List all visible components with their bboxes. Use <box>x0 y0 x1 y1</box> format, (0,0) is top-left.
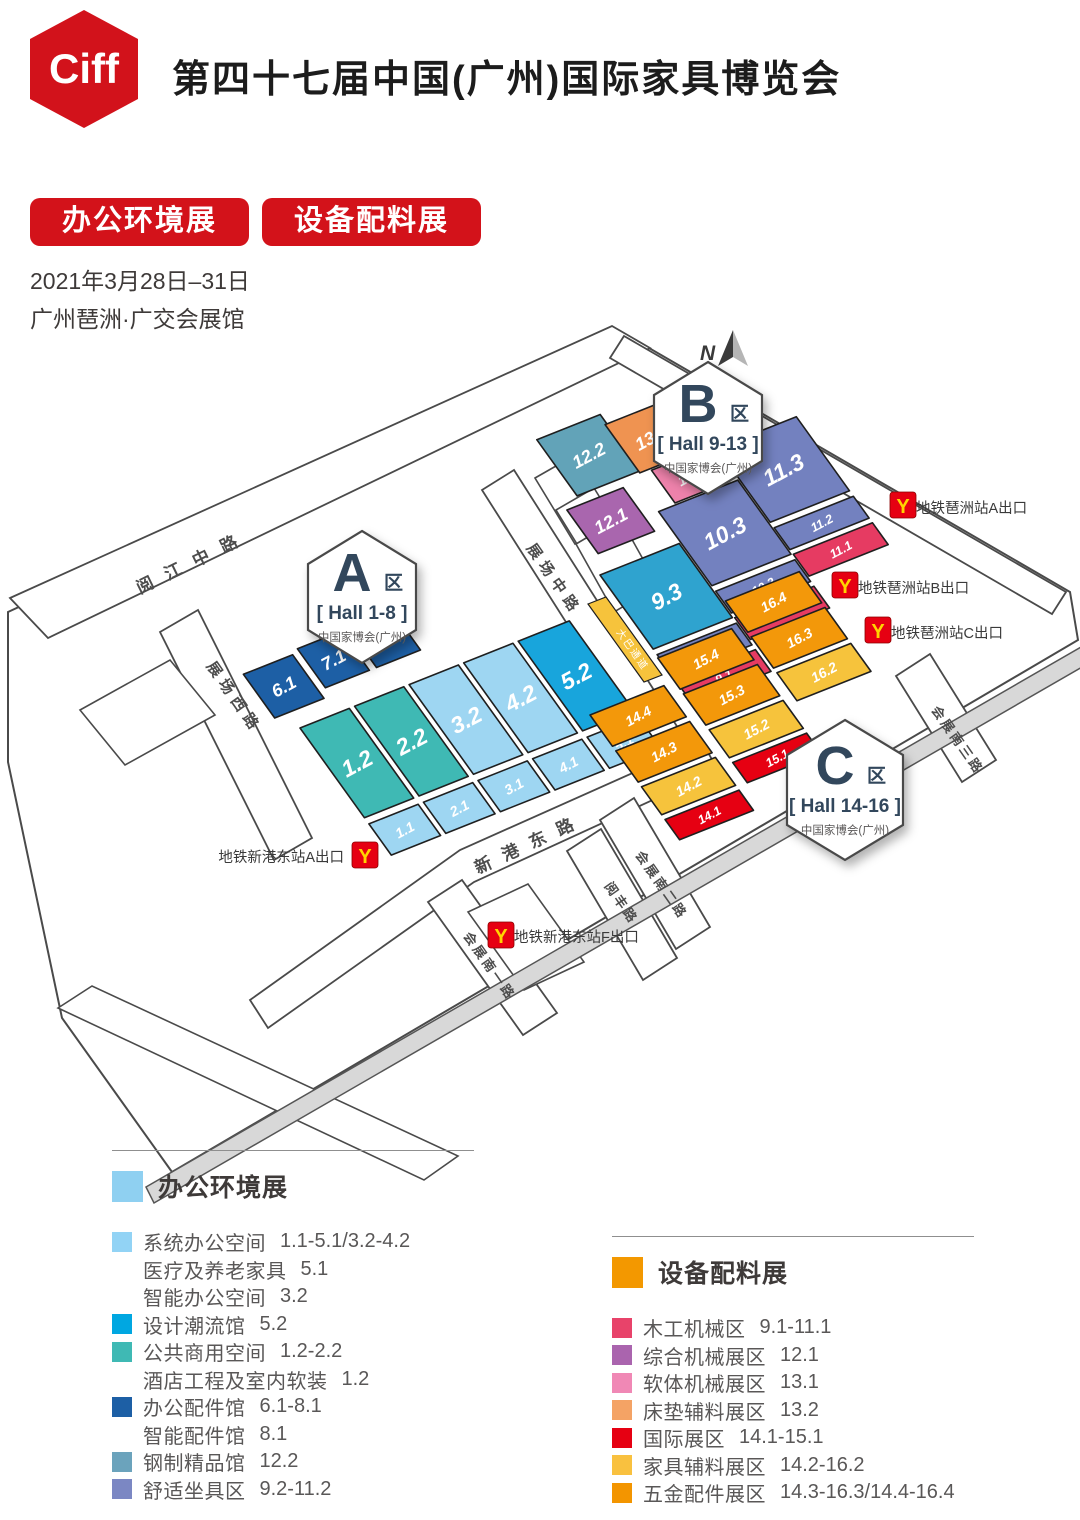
legend-item-range: 1.2-2.2 <box>280 1340 342 1363</box>
zone-suffix-C: 区 <box>867 766 886 787</box>
metro-y-glyph-icon: Y <box>358 846 372 868</box>
legend-item-name: 木工机械区 <box>643 1313 746 1342</box>
legend-item: 钢制精品馆12.2 <box>112 1448 492 1476</box>
legend-item: 木工机械区9.1-11.1 <box>612 1314 992 1342</box>
legend-item-swatch-icon <box>112 1479 132 1499</box>
metro-y-glyph-icon: Y <box>838 576 852 598</box>
badge-office-show[interactable]: 办公环境展 <box>30 198 249 246</box>
legend-equipment-show: 设备配料展 木工机械区9.1-11.1综合机械展区12.1软体机械展区13.1床… <box>612 1236 992 1507</box>
legend-equipment-title: 设备配料展 <box>658 1254 788 1290</box>
legend-equipment-swatch-icon <box>612 1257 643 1288</box>
legend-item-range: 12.1 <box>780 1344 819 1367</box>
legend-item-name: 智能配件馆 <box>143 1420 246 1449</box>
legend-item-swatch-icon <box>612 1455 632 1475</box>
zone-subtitle-C: 中国家博会(广州) <box>801 823 889 837</box>
legend-item-range: 3.2 <box>280 1285 308 1308</box>
legend-item-name: 五金配件展区 <box>643 1478 766 1507</box>
zone-range-B: [ Hall 9-13 ] <box>657 434 758 455</box>
event-date: 2021年3月28日–31日 <box>30 262 250 296</box>
metro-y-glyph-icon: Y <box>896 496 910 518</box>
legend-office-items: 系统办公空间1.1-5.1/3.2-4.2医疗及养老家具5.1智能办公空间3.2… <box>112 1228 492 1503</box>
badge-equipment-show[interactable]: 设备配料展 <box>262 198 481 246</box>
legend-item-range: 5.1 <box>301 1258 329 1281</box>
ciff-logo: Ciff <box>24 6 144 132</box>
legend-item-range: 5.2 <box>260 1313 288 1336</box>
compass: N <box>700 330 748 366</box>
legend-item-swatch-icon <box>112 1452 132 1472</box>
legend-item-range: 9.2-11.2 <box>260 1478 332 1501</box>
legend-item-name: 智能办公空间 <box>143 1282 266 1311</box>
legend-item-swatch-icon <box>612 1318 632 1338</box>
legend-item-range: 14.2-16.2 <box>780 1454 865 1477</box>
legend-item-range: 12.2 <box>260 1450 299 1473</box>
legend-item-swatch-icon <box>112 1232 132 1252</box>
legend-office-title-row: 办公环境展 <box>112 1168 492 1204</box>
legend-item-name: 设计潮流馆 <box>143 1310 246 1339</box>
legend-item: 公共商用空间1.2-2.2 <box>112 1338 492 1366</box>
zone-suffix-A: 区 <box>384 573 403 594</box>
legend-item-name: 综合机械展区 <box>643 1341 766 1370</box>
legend-item: 医疗及养老家具5.1 <box>112 1256 492 1284</box>
metro-y-glyph-icon: Y <box>871 621 885 643</box>
zone-subtitle-B: 中国家博会(广州) <box>664 461 752 475</box>
legend-item: 系统办公空间1.1-5.1/3.2-4.2 <box>112 1228 492 1256</box>
zone-subtitle-A: 中国家博会(广州) <box>318 630 406 644</box>
legend-item-range: 9.1-11.1 <box>760 1316 832 1339</box>
legend-office-swatch-icon <box>112 1171 143 1202</box>
legend-item-name: 舒适坐具区 <box>143 1475 246 1504</box>
legend-item-name: 国际展区 <box>643 1423 725 1452</box>
legend-item-swatch-icon <box>612 1345 632 1365</box>
legend-item-swatch-icon <box>612 1428 632 1448</box>
legend-item-name: 公共商用空间 <box>143 1337 266 1366</box>
legend-item-range: 1.1-5.1/3.2-4.2 <box>280 1230 410 1253</box>
zone-letter-A: A <box>333 543 372 603</box>
legend-item-name: 床垫辅料展区 <box>643 1396 766 1425</box>
legend-equipment-rule <box>612 1236 974 1237</box>
compass-needle-dark-icon <box>718 330 733 366</box>
legend-item-name: 钢制精品馆 <box>143 1447 246 1476</box>
legend-item-name: 系统办公空间 <box>143 1227 266 1256</box>
legend-item-name: 办公配件馆 <box>143 1392 246 1421</box>
legend-item-swatch-icon <box>612 1483 632 1503</box>
metro-exit-label-pazhou-c: 地铁琶洲站C出口 <box>891 625 1003 642</box>
zone-range-A: [ Hall 1-8 ] <box>317 603 408 624</box>
legend-item: 办公配件馆6.1-8.1 <box>112 1393 492 1421</box>
legend-item: 家具辅料展区14.2-16.2 <box>612 1452 992 1480</box>
metro-y-glyph-icon: Y <box>494 926 508 948</box>
legend-item-swatch-icon <box>612 1400 632 1420</box>
legend-item-name: 医疗及养老家具 <box>143 1255 287 1284</box>
zone-letter-C: C <box>816 736 855 796</box>
legend-item: 综合机械展区12.1 <box>612 1342 992 1370</box>
metro-exit-pazhou-a: Y地铁琶洲站A出口 <box>890 492 1027 518</box>
legend-item-range: 13.2 <box>780 1399 819 1422</box>
metro-exit-label-xingangdong-f: 地铁新港东站F出口 <box>514 929 639 946</box>
legend-item-range: 13.1 <box>780 1371 819 1394</box>
legend-item-swatch-icon <box>112 1397 132 1417</box>
legend-office-rule <box>112 1150 474 1151</box>
metro-exit-label-xingangdong-a: 地铁新港东站A出口 <box>218 849 344 866</box>
compass-n-label: N <box>700 342 716 365</box>
legend-item-range: 14.3-16.3/14.4-16.4 <box>780 1481 955 1504</box>
legend-item-range: 14.1-15.1 <box>739 1426 824 1449</box>
legend-item: 五金配件展区14.3-16.3/14.4-16.4 <box>612 1479 992 1507</box>
legend-item: 设计潮流馆5.2 <box>112 1311 492 1339</box>
legend-item: 舒适坐具区9.2-11.2 <box>112 1476 492 1504</box>
zone-range-C: [ Hall 14-16 ] <box>789 796 901 817</box>
show-badge-row: 办公环境展 设备配料展 <box>30 198 481 246</box>
metro-exit-label-pazhou-a: 地铁琶洲站A出口 <box>916 500 1027 517</box>
zone-letter-B: B <box>679 374 718 434</box>
legend-item-swatch-icon <box>112 1342 132 1362</box>
legend-item-name: 酒店工程及室内软装 <box>143 1365 328 1394</box>
legend-item: 智能办公空间3.2 <box>112 1283 492 1311</box>
metro-exit-label-pazhou-b: 地铁琶洲站B出口 <box>858 580 969 597</box>
compass-needle-light-icon <box>733 330 748 366</box>
event-venue: 广州琶洲·广交会展馆 <box>30 300 245 334</box>
legend-item-range: 6.1-8.1 <box>260 1395 322 1418</box>
legend-office-title: 办公环境展 <box>158 1168 288 1204</box>
legend-office-show: 办公环境展 系统办公空间1.1-5.1/3.2-4.2医疗及养老家具5.1智能办… <box>112 1150 492 1503</box>
legend-item-range: 1.2 <box>342 1368 370 1391</box>
legend-item: 智能配件馆8.1 <box>112 1421 492 1449</box>
legend-equipment-items: 木工机械区9.1-11.1综合机械展区12.1软体机械展区13.1床垫辅料展区1… <box>612 1314 992 1507</box>
ciff-logo-text: Ciff <box>49 45 120 92</box>
legend-item: 国际展区14.1-15.1 <box>612 1424 992 1452</box>
legend-equipment-title-row: 设备配料展 <box>612 1254 992 1290</box>
legend-item: 酒店工程及室内软装1.2 <box>112 1366 492 1394</box>
legend-item-name: 软体机械展区 <box>643 1368 766 1397</box>
legend-item-swatch-icon <box>612 1373 632 1393</box>
legend-item: 软体机械展区13.1 <box>612 1369 992 1397</box>
legend-item-swatch-icon <box>112 1314 132 1334</box>
legend-item-name: 家具辅料展区 <box>643 1451 766 1480</box>
page-title: 第四十七届中国(广州)国际家具博览会 <box>172 48 841 103</box>
legend-item: 床垫辅料展区13.2 <box>612 1397 992 1425</box>
zone-suffix-B: 区 <box>730 404 749 425</box>
legend-item-range: 8.1 <box>260 1423 288 1446</box>
